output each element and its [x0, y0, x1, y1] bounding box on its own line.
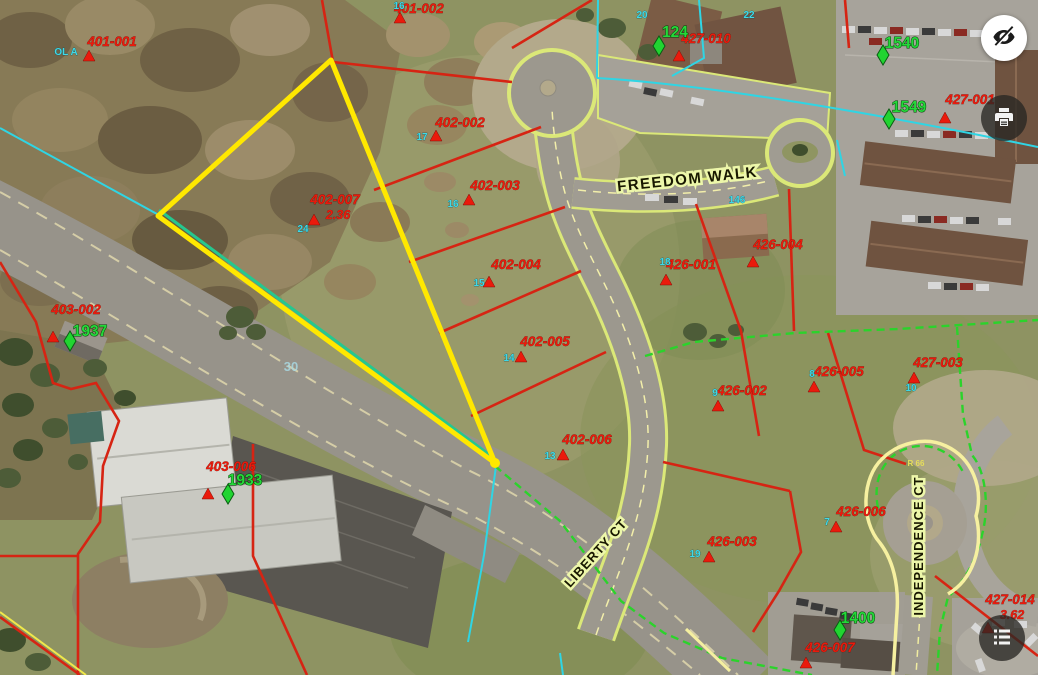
- parcel-label: 402-007: [309, 192, 361, 207]
- legend-list-icon: [990, 625, 1014, 652]
- address-label: 1937: [73, 323, 107, 340]
- lot-number-label: 8: [809, 369, 815, 380]
- parcel-label: 426-003: [706, 534, 757, 549]
- map-viewport[interactable]: FREEDOM WALK LIBERTY CT INDEPENDENCE CT …: [0, 0, 1038, 675]
- address-label: 1540: [885, 35, 919, 52]
- road-number-label: 30: [284, 359, 298, 374]
- parcel-vertex-dot: [490, 458, 500, 468]
- lot-number-label: 9: [712, 388, 718, 399]
- visibility-toggle-button[interactable]: [981, 15, 1027, 61]
- lot-number-label: 13: [544, 451, 556, 462]
- address-label: 1933: [228, 472, 263, 489]
- parcel-label: 427-003: [912, 355, 963, 370]
- lot-number-label: 18: [659, 257, 671, 268]
- parcel-label: 402-004: [490, 257, 541, 272]
- address-label: 124: [662, 24, 688, 41]
- lot-number-label: 19: [689, 549, 701, 560]
- road-dimension-label: R 66: [908, 459, 925, 468]
- lot-number-label: 15: [473, 278, 485, 289]
- parcel-label: 402-006: [561, 432, 612, 447]
- lot-number-label: 10: [905, 383, 917, 394]
- map-canvas[interactable]: FREEDOM WALK LIBERTY CT INDEPENDENCE CT …: [0, 0, 1038, 675]
- lot-number-label: 16: [393, 1, 405, 12]
- lot-number-label: 14: [503, 353, 515, 364]
- printer-icon: [992, 105, 1016, 132]
- lot-number-label: OL A: [54, 47, 77, 58]
- parcel-label: 403-002: [50, 302, 101, 317]
- parcel-label: 402-005: [519, 334, 570, 349]
- address-label: 1400: [841, 610, 875, 627]
- lot-number-label: 16: [447, 199, 459, 210]
- lot-number-label: 22: [743, 10, 755, 21]
- parcel-label: 426-002: [716, 383, 767, 398]
- lot-number-label: 24: [297, 224, 309, 235]
- parcel-area-label: 2.36: [325, 208, 351, 222]
- eye-slash-icon: [991, 24, 1017, 53]
- lot-number-label: 20: [636, 10, 648, 21]
- print-button[interactable]: [981, 95, 1027, 141]
- lot-number-label: 7: [824, 517, 830, 528]
- parcel-label: 427-014: [984, 592, 1035, 607]
- parcel-label: 426-004: [752, 237, 803, 252]
- parcel-label: 426-006: [835, 504, 886, 519]
- parcel-label: 402-002: [434, 115, 485, 130]
- parcel-label: 426-005: [813, 364, 864, 379]
- parcel-label: 401-001: [86, 34, 137, 49]
- legend-button[interactable]: [979, 615, 1025, 661]
- lot-number-label: 17: [416, 132, 428, 143]
- address-label: 1549: [892, 99, 927, 116]
- lot-number-label: 146: [729, 195, 746, 206]
- parcel-label: 426-001: [665, 257, 716, 272]
- parcel-label: 402-003: [469, 178, 520, 193]
- street-label-independence-ct: INDEPENDENCE CT: [911, 476, 926, 615]
- parcel-label: 426-007: [804, 640, 856, 655]
